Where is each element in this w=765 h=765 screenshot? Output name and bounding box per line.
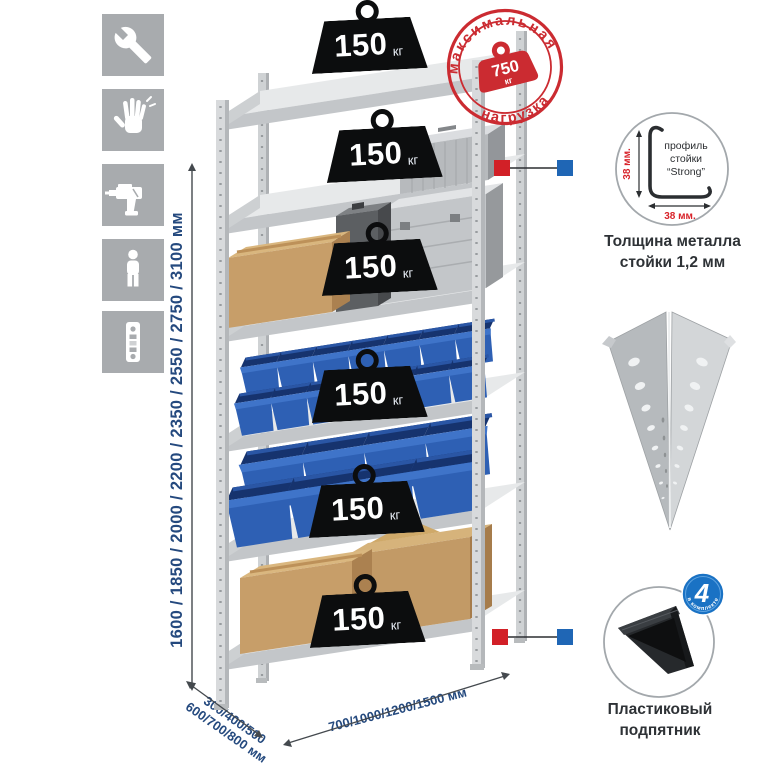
profile-dim-horizontal-label: 38 мм.	[664, 211, 696, 222]
height-dimension-line	[188, 163, 196, 691]
load-unit: кг	[389, 507, 400, 523]
profile-detail-circle: 38 мм. 38 мм. профиль стойки “Strong”	[612, 109, 732, 229]
shelf-load-badge: 150кг	[314, 219, 442, 296]
connector-blue-square-top	[557, 160, 573, 176]
load-unit: кг	[392, 43, 403, 59]
load-unit: кг	[402, 265, 413, 281]
load-value: 150	[348, 135, 403, 174]
connector-red-square-bottom	[492, 629, 508, 645]
shelf-load-badge: 150кг	[301, 461, 429, 538]
width-dimension-line	[283, 672, 510, 747]
profile-inner-label: профиль стойки “Strong”	[664, 140, 708, 178]
load-unit: кг	[392, 392, 403, 408]
foot-callout-connector	[492, 629, 573, 645]
load-value: 150	[330, 490, 385, 529]
load-value: 150	[343, 248, 398, 287]
load-value: 150	[331, 600, 386, 639]
included-count-value: 4	[694, 578, 710, 608]
profile-dim-vertical-label: 38 мм.	[622, 148, 633, 180]
shelf-load-badge: 150кг	[302, 571, 430, 648]
load-unit: кг	[390, 617, 401, 633]
load-value: 150	[333, 375, 388, 414]
front-right-post	[470, 60, 485, 670]
profile-callout-connector	[494, 160, 573, 176]
svg-text:профиль: профиль	[664, 140, 708, 152]
connector-blue-square-bottom	[557, 629, 573, 645]
included-count-badge: 4 в комплекте	[682, 573, 724, 615]
shelf-load-badge: 150кг	[304, 0, 432, 74]
corner-post-image	[594, 298, 744, 548]
svg-text:“Strong”: “Strong”	[667, 166, 705, 178]
shelf-load-badge: 150кг	[304, 346, 432, 423]
max-load-stamp: максимальная нагрузка 750 кг	[442, 4, 568, 130]
plastic-foot-circle: 4 в комплекте	[598, 570, 730, 702]
stamp-arc-bottom-text: нагрузка	[476, 89, 557, 130]
load-unit: кг	[407, 152, 418, 168]
load-value: 150	[333, 26, 388, 65]
svg-text:стойки: стойки	[670, 153, 702, 165]
page: 1600 / 1850 / 2000 / 2200 / 2350 / 2550 …	[0, 0, 765, 765]
connector-red-square-top	[494, 160, 510, 176]
shelf-load-badge: 150кг	[319, 106, 447, 183]
front-left-post	[214, 100, 229, 710]
svg-text:нагрузка: нагрузка	[476, 89, 557, 130]
